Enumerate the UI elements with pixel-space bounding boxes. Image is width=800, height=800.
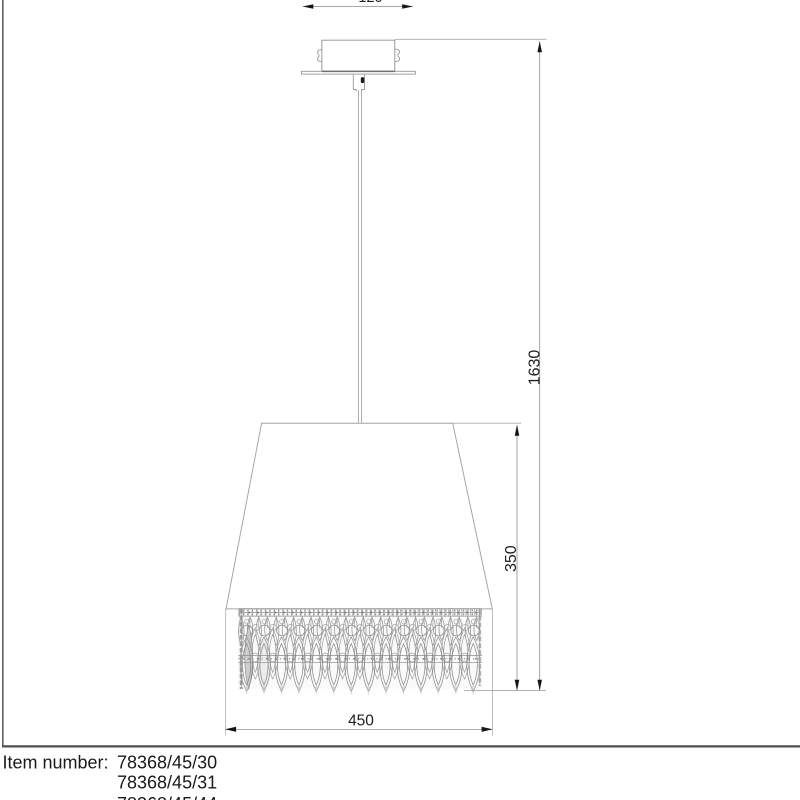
svg-text:350: 350: [503, 545, 520, 572]
svg-text:Item number:: Item number:: [3, 753, 109, 773]
svg-text:78368/45/30: 78368/45/30: [117, 753, 217, 773]
svg-text:120: 120: [358, 0, 382, 6]
svg-text:78368/45/31: 78368/45/31: [117, 773, 217, 793]
svg-text:1630: 1630: [526, 350, 543, 386]
svg-text:450: 450: [348, 712, 374, 729]
svg-text:78368/45/44: 78368/45/44: [117, 794, 217, 800]
